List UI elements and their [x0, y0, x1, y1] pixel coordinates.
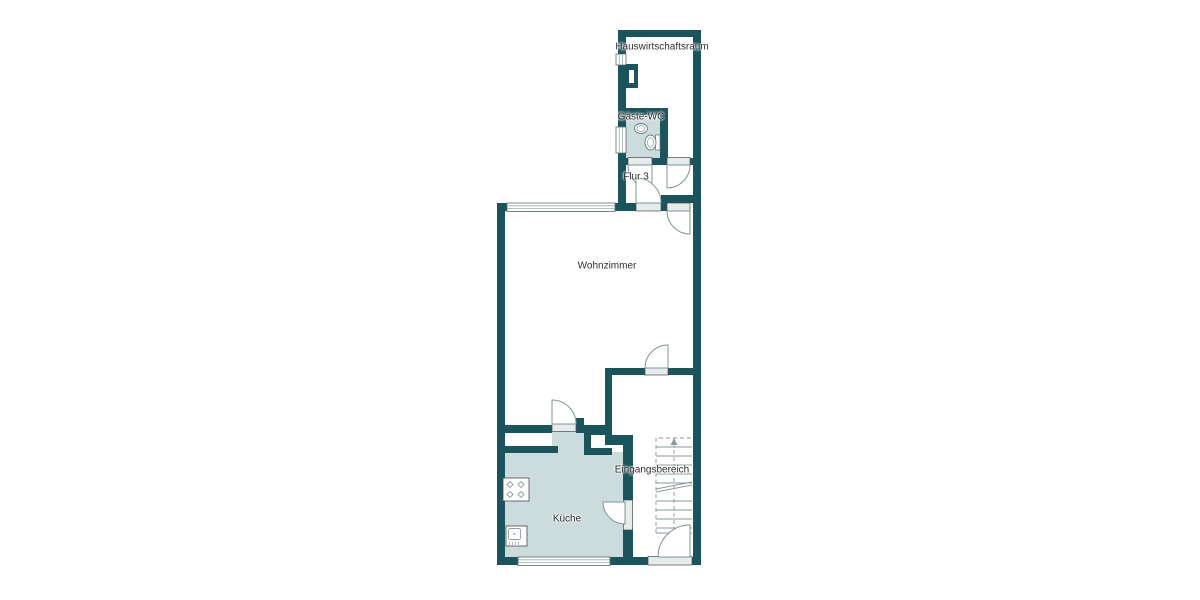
wall-kueche-north-left — [500, 425, 552, 433]
room-label-hauswirtschaftsraum: Hauswirtschaftsraum — [615, 42, 708, 53]
window-hauswirtschaft — [616, 54, 626, 65]
room-label-gaeste-wc: Gäste-WC — [618, 112, 665, 123]
wall-wohnzimmer-top-left — [497, 203, 507, 211]
floorplan-canvas: Hauswirtschaftsraum Gäste-WC Flur 3 Wohn… — [0, 0, 1200, 600]
wall-kueche-niche-right-bottom — [591, 448, 612, 455]
wall-mid-right — [668, 368, 693, 375]
door-arc-kueche-north — [552, 400, 576, 424]
sill-kueche-north-door — [552, 424, 576, 432]
sill-landing-door — [667, 158, 690, 166]
sill-flur-door — [636, 203, 661, 211]
room-label-flur-3: Flur 3 — [623, 172, 649, 183]
window-gaeste-wc — [616, 127, 626, 153]
washbasin — [635, 124, 648, 134]
wall-kueche-ne-block — [584, 425, 612, 435]
stove — [503, 478, 529, 501]
staircase — [656, 438, 692, 533]
wall-flur-top-a — [618, 158, 628, 165]
stair-direction-arrow-icon — [671, 438, 678, 445]
sill-wc-door — [628, 158, 652, 166]
door-arc-eingang — [645, 345, 668, 368]
wall-eingang-left-upper — [605, 368, 612, 435]
wall-landing-bottom — [667, 195, 693, 203]
floorplan-drawing — [0, 0, 1200, 600]
threshold-entry-door — [648, 557, 692, 566]
window-wohnzimmer — [507, 203, 615, 212]
wall-flur-top-c — [690, 158, 693, 165]
toilet — [645, 135, 660, 150]
sill-eingang-door — [645, 368, 668, 376]
wall-top — [618, 30, 701, 37]
door-arc-wohnzimmer-right — [667, 211, 690, 234]
wall-wohnzimmer-top-right — [615, 203, 636, 211]
sill-wohnzimmer-right-door — [667, 203, 690, 211]
wall-kueche-ne-stub — [584, 435, 591, 455]
room-label-eingangsbereich: Eingangsbereich — [615, 465, 690, 476]
wall-flur-top-b — [652, 158, 667, 165]
window-kueche — [518, 557, 610, 566]
door-arc-landing — [667, 165, 690, 188]
wall-landing-pier — [661, 195, 667, 211]
chimney-flue-slot — [629, 70, 634, 83]
room-label-kueche: Küche — [553, 514, 581, 525]
wall-kueche-niche-left-bottom — [497, 446, 558, 453]
wall-kueche-north-stub — [576, 418, 584, 433]
door-arc-entry — [658, 525, 690, 557]
wall-kueche-ne-bar — [605, 435, 633, 445]
wall-left-lower — [497, 205, 505, 565]
room-label-wohnzimmer: Wohnzimmer — [578, 261, 637, 272]
kitchen-sink — [506, 526, 527, 546]
wall-kueche-right-lower — [623, 530, 633, 557]
wall-right-outer — [693, 30, 701, 565]
